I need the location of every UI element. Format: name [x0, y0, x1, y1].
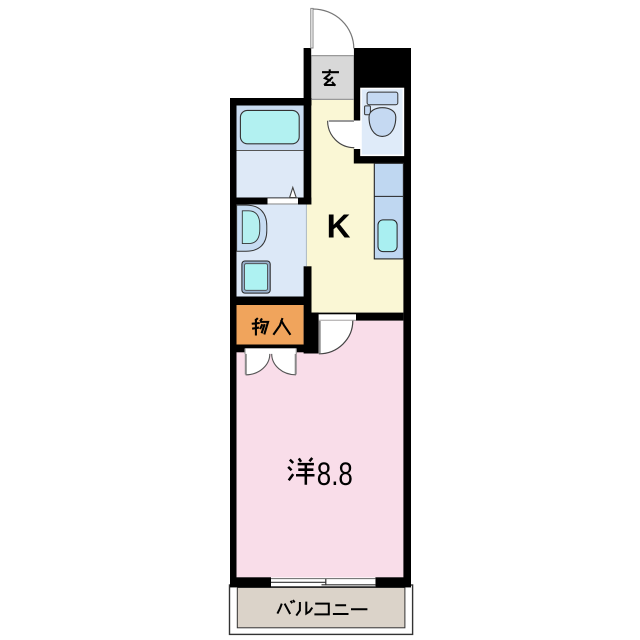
svg-text:K: K [327, 208, 351, 245]
svg-text:8.8: 8.8 [317, 456, 353, 492]
